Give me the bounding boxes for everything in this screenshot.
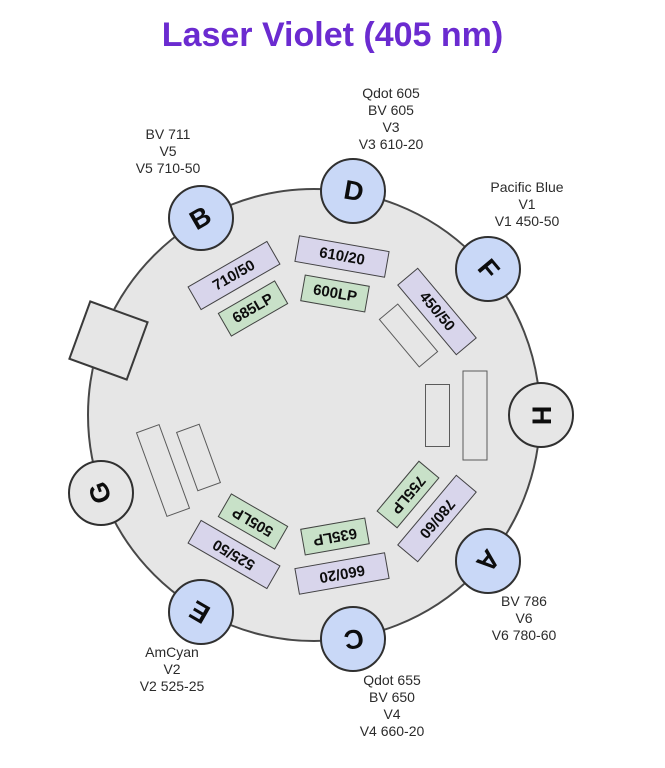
filter-label: 600LP bbox=[312, 282, 358, 306]
fluor-label-line: BV 605 bbox=[306, 102, 476, 119]
fluor-label-F: Pacific BlueV1V1 450-50 bbox=[442, 179, 612, 230]
detector-circle-H: H bbox=[508, 382, 574, 448]
detector-letter: A bbox=[471, 545, 504, 577]
detector-circle-G: G bbox=[68, 460, 134, 526]
detector-circle-F: F bbox=[455, 236, 521, 302]
page-title: Laser Violet (405 nm) bbox=[0, 16, 665, 55]
fluor-label-line: V4 660-20 bbox=[307, 723, 477, 740]
fluor-label-line: Pacific Blue bbox=[442, 179, 612, 196]
fluor-label-line: AmCyan bbox=[87, 644, 257, 661]
fluor-label-line: V1 450-50 bbox=[442, 213, 612, 230]
fluor-label-line: V3 610-20 bbox=[306, 136, 476, 153]
fluor-label-line: V2 bbox=[87, 661, 257, 678]
detector-letter: H bbox=[528, 405, 555, 425]
detector-circle-C: C bbox=[320, 606, 386, 672]
filter-label: 610/20 bbox=[318, 244, 366, 269]
fluor-label-line: V1 bbox=[442, 196, 612, 213]
fluor-label-line: V5 bbox=[83, 143, 253, 160]
filter-label: 635LP bbox=[312, 524, 358, 548]
filter-label: 660/20 bbox=[318, 561, 366, 586]
fluor-label-B: BV 711V5V5 710-50 bbox=[83, 126, 253, 177]
detector-circle-E: E bbox=[168, 579, 234, 645]
fluor-label-line: BV 711 bbox=[83, 126, 253, 143]
fluor-label-D: Qdot 605BV 605V3V3 610-20 bbox=[306, 85, 476, 153]
fluor-label-E: AmCyanV2V2 525-25 bbox=[87, 644, 257, 695]
detector-wheel-diagram: Laser Violet (405 nm) 450/50610/20600LP7… bbox=[0, 0, 665, 768]
fluor-label-line: V5 710-50 bbox=[83, 160, 253, 177]
fluor-label-line: V2 525-25 bbox=[87, 678, 257, 695]
detector-letter: F bbox=[472, 254, 503, 284]
fluor-label-A: BV 786V6V6 780-60 bbox=[439, 593, 609, 644]
fluor-label-line: V6 780-60 bbox=[439, 627, 609, 644]
detector-letter: D bbox=[341, 176, 365, 206]
fluor-label-C: Qdot 655BV 650V4V4 660-20 bbox=[307, 672, 477, 740]
fluor-label-line: BV 650 bbox=[307, 689, 477, 706]
detector-letter: B bbox=[185, 202, 215, 235]
fluor-label-line: Qdot 605 bbox=[306, 85, 476, 102]
fluor-label-line: V6 bbox=[439, 610, 609, 627]
fluor-label-line: BV 786 bbox=[439, 593, 609, 610]
fluor-label-line: V3 bbox=[306, 119, 476, 136]
detector-letter: C bbox=[341, 624, 365, 654]
detector-letter: E bbox=[186, 595, 215, 627]
detector-circle-B: B bbox=[168, 185, 234, 251]
fluor-label-line: Qdot 655 bbox=[307, 672, 477, 689]
empty-filter-slot bbox=[425, 384, 450, 447]
empty-filter-slot bbox=[463, 370, 488, 460]
detector-letter: G bbox=[84, 478, 117, 507]
detector-circle-A: A bbox=[455, 528, 521, 594]
fluor-label-line: V4 bbox=[307, 706, 477, 723]
